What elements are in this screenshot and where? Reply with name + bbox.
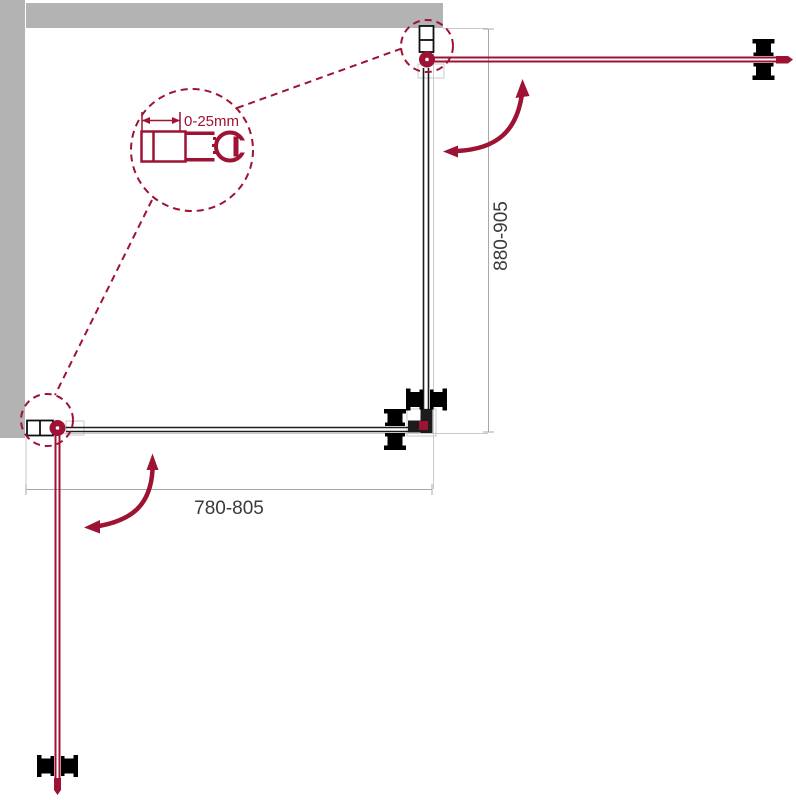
- left-door-glass-open: [56, 435, 60, 778]
- top-pivot-center: [425, 58, 429, 62]
- detail-screw-1: [213, 137, 216, 140]
- detail-arm-top: [186, 132, 215, 136]
- corner-connector: [408, 409, 433, 433]
- top-swing-arrowhead-up: [516, 79, 530, 98]
- handle-bottom-door-icon: [384, 409, 406, 450]
- door-open-top: [419, 39, 793, 80]
- hinge-profile-left: [27, 421, 53, 436]
- top-wall-profile: [420, 26, 434, 52]
- hinge-profile-top: [420, 26, 434, 52]
- top-door-tip: [776, 56, 793, 64]
- dimension-width: 780-805: [26, 484, 432, 519]
- leader-to-left-hinge: [55, 200, 152, 395]
- footprint-ghost-lines: [26, 28, 488, 489]
- leader-to-top-hinge: [237, 48, 403, 108]
- handle-left-door-icon: [37, 755, 78, 777]
- corner-connector-pivot: [419, 421, 428, 430]
- detail-dim-arrow-right: [172, 117, 180, 124]
- handle-right-door-icon: [406, 389, 447, 411]
- detail-arm-bottom: [186, 158, 215, 162]
- shower-enclosure-diagram: 780-805 880-905: [0, 0, 796, 800]
- detail-clamp-tab: [234, 137, 239, 157]
- height-dim-label: 880-905: [491, 201, 512, 271]
- dimension-height: 880-905: [483, 29, 512, 432]
- top-door-swing-arc: [457, 97, 522, 151]
- detail-screw-3: [213, 151, 216, 154]
- left-swing-arrowhead-left: [84, 520, 100, 534]
- top-door-glass-open: [433, 58, 776, 62]
- detail-view: 0-25mm: [142, 112, 249, 162]
- right-panel-glass: [424, 68, 429, 411]
- handle-top-door-icon: [753, 39, 775, 80]
- detail-screw-2: [212, 144, 215, 147]
- bottom-panel-glass: [66, 428, 410, 432]
- callouts: [21, 20, 453, 446]
- top-wall: [26, 3, 443, 28]
- door-open-left: [37, 420, 78, 795]
- detail-wall-profile: [142, 132, 186, 162]
- left-swing-arrowhead-up: [147, 454, 159, 471]
- closed-panel-right: [424, 68, 429, 411]
- diagram-canvas: 780-805 880-905: [0, 0, 796, 800]
- adjustment-range-label: 0-25mm: [184, 113, 239, 130]
- detail-dim-arrow-left: [142, 117, 150, 124]
- width-dim-label: 780-805: [194, 498, 264, 519]
- left-wall: [0, 0, 25, 438]
- closed-panel-bottom: [66, 428, 410, 432]
- left-door-tip: [54, 778, 61, 795]
- top-swing-arrowhead-left: [443, 146, 458, 158]
- left-door-swing-arc: [99, 470, 153, 526]
- left-pivot-center: [56, 426, 60, 430]
- detail-clamp-slot: [230, 141, 248, 153]
